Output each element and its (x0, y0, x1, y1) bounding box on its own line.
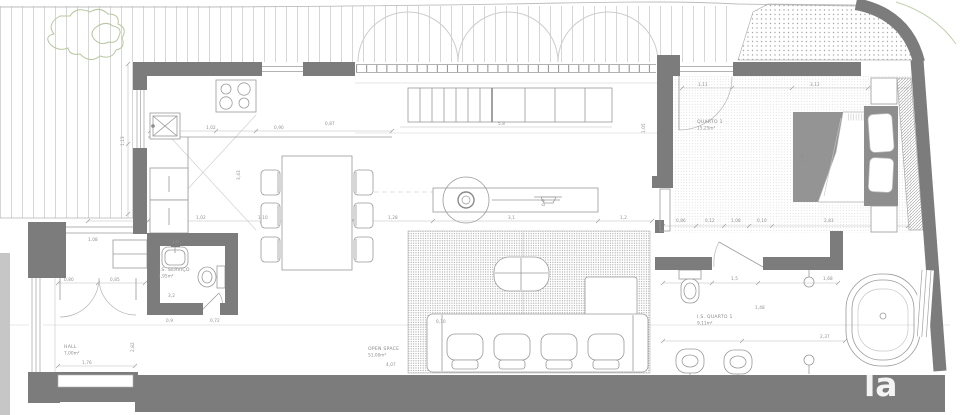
chair-symbol (354, 170, 373, 195)
dimension-label: 0,10 (757, 218, 767, 223)
dimension-label: 0,10 (436, 319, 446, 324)
dimension-label: 2,82 (130, 342, 135, 352)
dimension-label: 1,13 (120, 136, 125, 146)
bathtub-symbol (846, 274, 920, 366)
living-area (408, 231, 650, 373)
window-symbol (680, 64, 733, 74)
oven-symbol (150, 200, 188, 233)
door-swing-symbol (60, 278, 99, 317)
cooktop-symbol (216, 80, 256, 112)
dining-area (261, 156, 373, 270)
bathroom-door-swing (714, 242, 763, 267)
wall (763, 257, 838, 270)
dimension-label: 5,8 (498, 121, 505, 126)
room-label-is-quarto1: I.S. QUARTO 1 (697, 314, 733, 320)
dimension-label: 0,80 (64, 277, 74, 282)
wall (733, 62, 861, 76)
dimension-label: 1,10 (258, 215, 268, 220)
door-swing-symbol (99, 278, 136, 315)
dimension-label: 3,2 (168, 293, 175, 298)
wall (133, 148, 147, 234)
pillow-symbol (868, 113, 895, 153)
dimension-label: 0,12 (705, 218, 715, 223)
watermark: la (864, 365, 898, 404)
dimension-label: 1,02 (206, 125, 216, 130)
kitchen-island (433, 177, 598, 223)
hall (60, 227, 147, 317)
dimension-label: 0,9 (166, 318, 173, 323)
toilet-symbol (198, 266, 225, 288)
fridge-symbol (150, 168, 188, 200)
dimension-label: 1,0 (172, 239, 179, 244)
dimension-label: 1,5 (731, 276, 738, 281)
room-area-open-space: 51,00m² (368, 353, 386, 359)
floor-plan-canvas: QUARTO 1 15,25m² I.S. QUARTO 1 9,11m² OP… (0, 0, 960, 415)
kitchen-sink-symbol (150, 113, 180, 139)
chair-symbol (354, 203, 373, 228)
chair-symbol (354, 237, 373, 262)
dimension-label: 3,12 (810, 82, 820, 87)
door-swing-symbol (714, 242, 719, 267)
dimension-label: 4,07 (386, 362, 396, 367)
room-area-is-servico: 1,95m² (158, 274, 174, 280)
dimension-label: 1,08 (88, 237, 98, 242)
chaise-symbol (585, 277, 637, 318)
dimension-label: 0,9 (541, 199, 546, 206)
dimension-label: 1,48 (755, 305, 765, 310)
dimension-label: 2,37 (820, 334, 830, 339)
pillow-symbol (868, 157, 894, 192)
dimension-label: 0,86 (676, 218, 686, 223)
bidet-symbol (724, 350, 752, 379)
wall (657, 62, 673, 188)
dimension-label: 1,76 (82, 360, 92, 365)
wall (147, 303, 203, 315)
dimension-label: 0,90 (274, 125, 284, 130)
dimension-label: 1,28 (388, 215, 398, 220)
wall (28, 222, 66, 278)
washbasin-symbol (676, 349, 704, 378)
dimension-label: 1,68 (823, 276, 833, 281)
nightstand-symbol (871, 206, 897, 232)
dimension-label: 0,87 (325, 121, 335, 126)
dimension-label: 2,83 (824, 218, 834, 223)
dimension-label: 1,60 (800, 153, 805, 163)
neighbor-wall (0, 253, 10, 415)
entry-threshold (58, 375, 133, 387)
bedroom (673, 76, 923, 233)
dimension-label: 0,72 (210, 318, 220, 323)
dimension-label: 1,02 (196, 215, 206, 220)
room-label-open-space: OPEN SPACE (368, 346, 399, 352)
glazed-wall-symbol (355, 63, 657, 74)
chair-symbol (261, 237, 280, 262)
dimension-label: 1,08 (731, 218, 741, 223)
window-symbol (262, 64, 303, 74)
wall (133, 62, 262, 76)
room-area-hall: 7,00m² (64, 351, 80, 357)
dimension-label: 1,11 (698, 82, 708, 87)
chair-symbol (261, 170, 280, 195)
wc-door-swing (201, 293, 223, 311)
wall (655, 257, 712, 270)
wall (147, 233, 238, 246)
wall-bottom-band (135, 375, 945, 412)
wall (303, 62, 355, 76)
wall (830, 231, 843, 270)
window-symbol (29, 278, 43, 372)
coffee-table-symbol (494, 257, 549, 291)
room-area-is-quarto1: 9,11m² (697, 321, 713, 327)
deck-symbol (0, 62, 133, 218)
toilet-symbol (679, 270, 701, 303)
dimension-label: 0,85 (110, 277, 120, 282)
dimension-label: 1,2 (620, 215, 627, 220)
window-symbol (134, 90, 147, 148)
stairs-symbol (408, 88, 612, 122)
wall (220, 303, 238, 315)
dimension-label: 3,43 (236, 170, 241, 180)
room-area-quarto1: 15,25m² (697, 126, 715, 132)
wall (652, 176, 673, 188)
wall (225, 233, 238, 315)
dimension-label: 1,05 (641, 123, 646, 133)
drain-symbol (804, 270, 814, 374)
entry-door-swings (60, 278, 136, 317)
sofa-symbol (427, 314, 648, 372)
dimension-label: 3,1 (508, 215, 515, 220)
dining-table-symbol (282, 156, 352, 270)
wall (133, 62, 147, 90)
room-label-hall: HALL (64, 344, 77, 350)
room-label-is-servico: I.S. SERVIÇO (158, 267, 190, 273)
floor-plan-drawing: QUARTO 1 15,25m² I.S. QUARTO 1 9,11m² OP… (0, 0, 960, 415)
room-label-quarto1: QUARTO 1 (697, 119, 723, 125)
nightstand-symbol (871, 78, 897, 104)
